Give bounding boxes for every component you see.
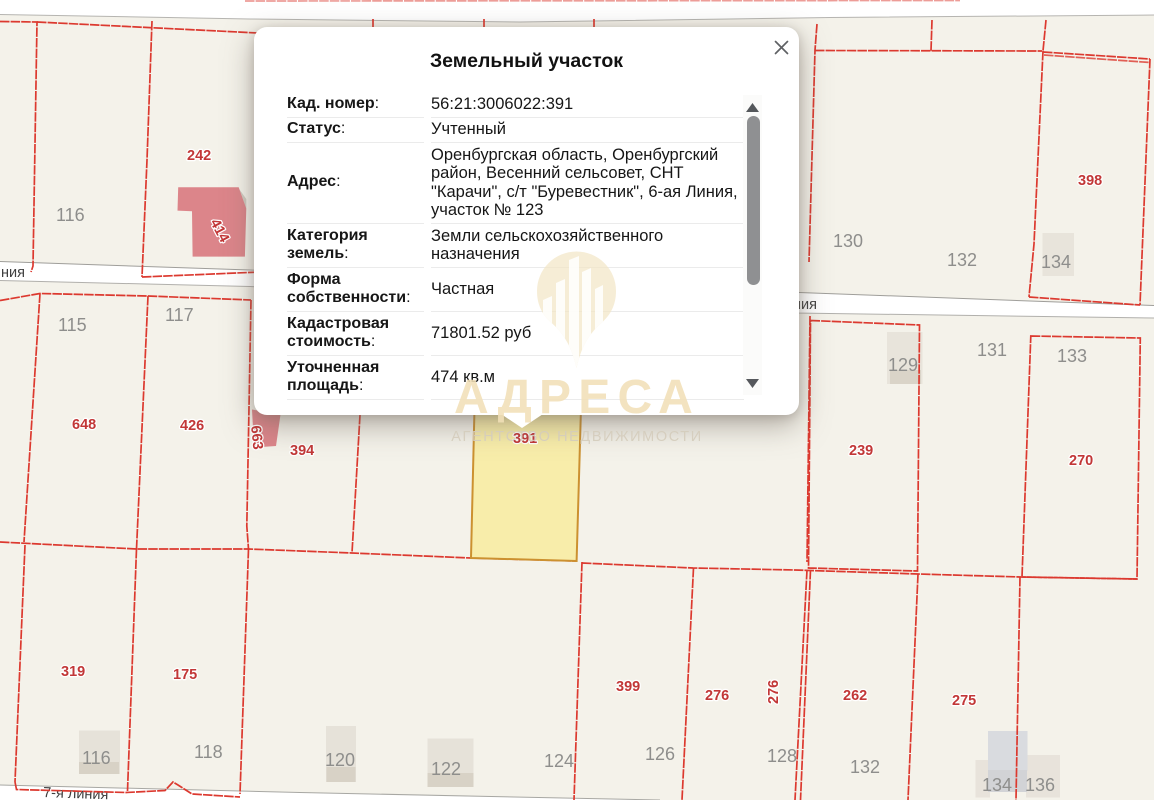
svg-text:399: 399 bbox=[616, 679, 640, 695]
svg-text:129: 129 bbox=[888, 355, 918, 375]
svg-text:118: 118 bbox=[194, 742, 223, 762]
svg-text:116: 116 bbox=[82, 748, 111, 768]
svg-text:132: 132 bbox=[850, 757, 880, 777]
svg-text:175: 175 bbox=[173, 667, 197, 683]
svg-text:116: 116 bbox=[56, 205, 85, 225]
svg-text:394: 394 bbox=[290, 443, 314, 459]
svg-text:117: 117 bbox=[165, 305, 194, 325]
svg-text:115: 115 bbox=[58, 315, 87, 335]
svg-text:120: 120 bbox=[325, 750, 355, 770]
svg-text:242: 242 bbox=[187, 148, 211, 164]
svg-text:262: 262 bbox=[843, 688, 867, 704]
svg-text:122: 122 bbox=[431, 759, 461, 779]
svg-text:136: 136 bbox=[1025, 775, 1055, 795]
svg-text:128: 128 bbox=[767, 746, 797, 766]
svg-text:398: 398 bbox=[1078, 173, 1102, 189]
svg-text:270: 270 bbox=[1069, 453, 1093, 469]
svg-text:124: 124 bbox=[544, 751, 574, 771]
svg-text:391: 391 bbox=[513, 431, 537, 447]
svg-text:134: 134 bbox=[982, 775, 1012, 795]
svg-text:126: 126 bbox=[645, 744, 675, 764]
svg-text:130: 130 bbox=[833, 231, 863, 251]
svg-text:663: 663 bbox=[247, 425, 265, 451]
svg-text:276: 276 bbox=[705, 688, 729, 704]
svg-text:239: 239 bbox=[849, 443, 873, 459]
svg-text:276: 276 bbox=[766, 680, 782, 704]
svg-text:134: 134 bbox=[1041, 252, 1071, 272]
svg-text:275: 275 bbox=[952, 693, 976, 709]
svg-text:ния: ния bbox=[1, 265, 25, 281]
svg-text:648: 648 bbox=[72, 417, 96, 433]
svg-text:131: 131 bbox=[977, 340, 1007, 360]
svg-text:319: 319 bbox=[61, 664, 85, 680]
svg-text:133: 133 bbox=[1057, 346, 1087, 366]
svg-text:426: 426 bbox=[180, 418, 204, 434]
svg-text:132: 132 bbox=[947, 250, 977, 270]
